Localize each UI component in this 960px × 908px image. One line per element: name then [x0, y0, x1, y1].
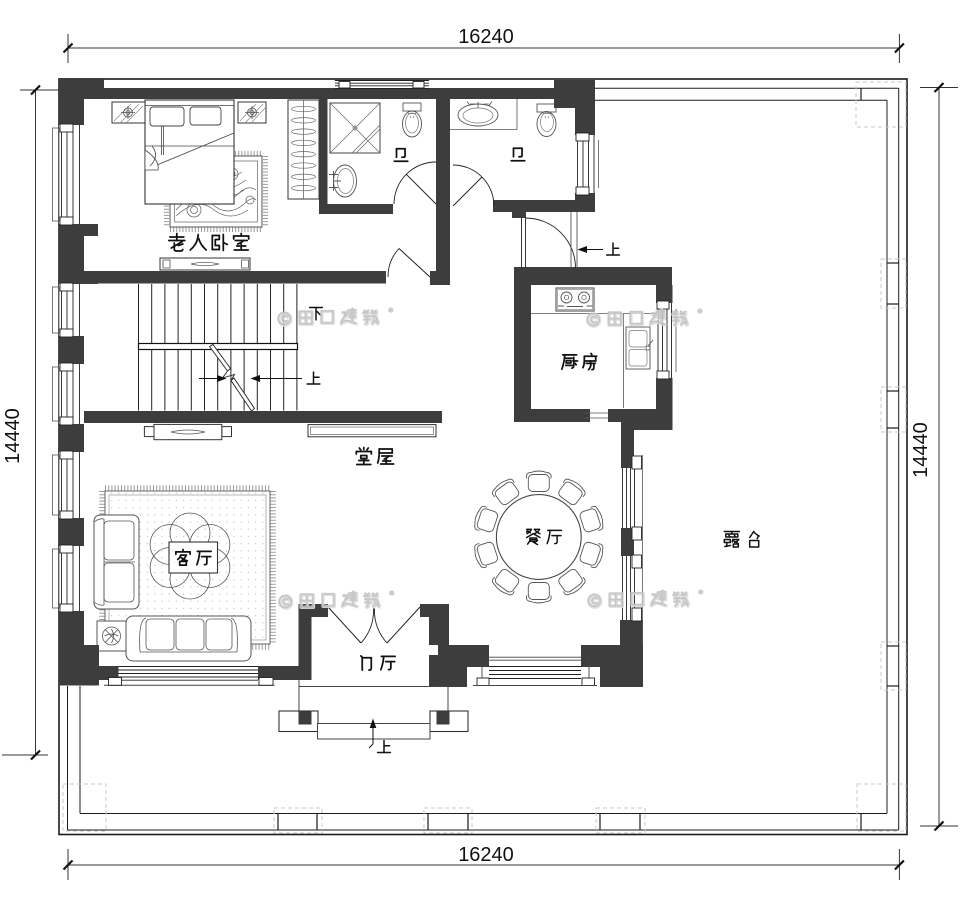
svg-text:14440: 14440: [910, 422, 932, 478]
svg-text:14440: 14440: [2, 408, 24, 464]
svg-text:16240: 16240: [458, 844, 514, 866]
svg-text:16240: 16240: [458, 26, 514, 48]
